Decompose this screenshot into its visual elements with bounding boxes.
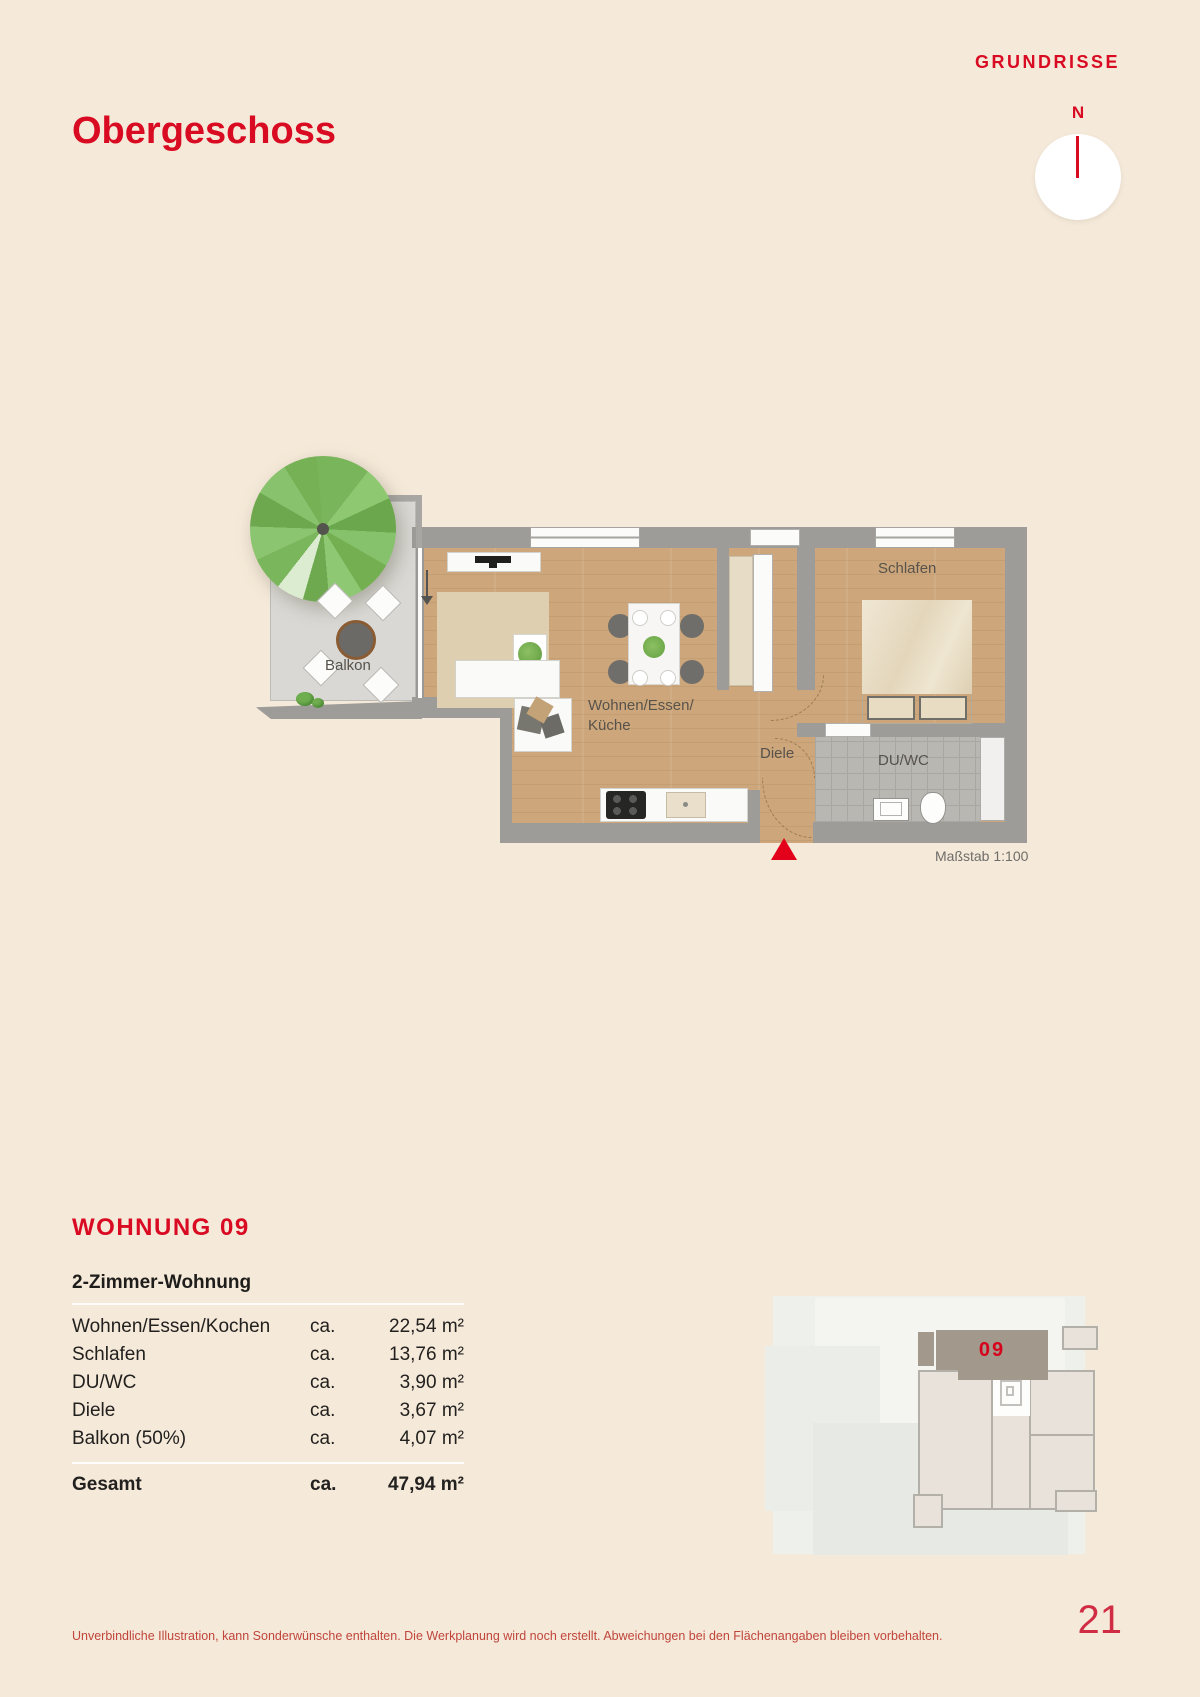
row-prefix: ca. bbox=[310, 1316, 352, 1338]
compass-north-label: N bbox=[1058, 103, 1098, 123]
tv-stand bbox=[489, 563, 497, 568]
wall-living-hall bbox=[717, 548, 729, 690]
total-prefix: ca. bbox=[310, 1474, 352, 1496]
row-label: Balkon (50%) bbox=[72, 1428, 310, 1450]
table-plant bbox=[643, 636, 665, 658]
unit-09-highlight: 09 bbox=[936, 1330, 1048, 1370]
row-label: Schlafen bbox=[72, 1344, 310, 1366]
sofa bbox=[455, 660, 560, 698]
row-value: 3,67 m² bbox=[352, 1400, 464, 1422]
table-total-row: Gesamt ca. 47,94 m² bbox=[72, 1462, 464, 1500]
entrance-marker-icon bbox=[771, 838, 797, 860]
building-divider bbox=[1031, 1434, 1093, 1436]
plate bbox=[632, 670, 648, 686]
stairs-icon bbox=[1006, 1386, 1014, 1396]
page-number: 21 bbox=[1078, 1598, 1123, 1643]
wall-entry-side bbox=[748, 790, 760, 843]
scale-label: Maßstab 1:100 bbox=[935, 848, 1028, 864]
dining-chair bbox=[680, 614, 704, 638]
wall-south-kitchen bbox=[512, 823, 748, 843]
bed-pillow bbox=[919, 696, 967, 720]
plate bbox=[660, 670, 676, 686]
parasol-umbrella bbox=[250, 456, 396, 602]
bed-pillow bbox=[867, 696, 915, 720]
row-value: 13,76 m² bbox=[352, 1344, 464, 1366]
window-bedroom bbox=[875, 527, 955, 548]
total-value: 47,94 m² bbox=[352, 1474, 464, 1496]
wall-east bbox=[1005, 527, 1027, 843]
balcony-table bbox=[336, 620, 376, 660]
entry-arrow-line bbox=[426, 570, 428, 596]
window-living bbox=[530, 527, 640, 548]
dining-chair bbox=[680, 660, 704, 684]
footer-disclaimer: Unverbindliche Illustration, kann Sonder… bbox=[72, 1629, 942, 1643]
apartment-heading: WOHNUNG 09 bbox=[72, 1214, 250, 1242]
door-bath bbox=[825, 723, 871, 737]
row-label: Diele bbox=[72, 1400, 310, 1422]
site-minimap: 09 bbox=[755, 1288, 1100, 1563]
hall-wardrobe bbox=[729, 556, 753, 686]
plate bbox=[660, 610, 676, 626]
row-value: 4,07 m² bbox=[352, 1428, 464, 1450]
section-kicker: GRUNDRISSE bbox=[975, 52, 1120, 73]
shower bbox=[980, 737, 1005, 821]
unit-09-wing bbox=[918, 1332, 934, 1366]
row-prefix: ca. bbox=[310, 1344, 352, 1366]
table-row: DU/WC ca. 3,90 m² bbox=[72, 1372, 464, 1400]
total-label: Gesamt bbox=[72, 1474, 310, 1496]
room-label-wohnen: Wohnen/Essen/ bbox=[588, 697, 694, 714]
room-label-duwc: DU/WC bbox=[878, 752, 929, 769]
room-label-balkon: Balkon bbox=[325, 657, 371, 674]
hall-sliding-door bbox=[753, 554, 773, 692]
building-annex bbox=[1055, 1490, 1097, 1512]
room-label-kueche: Küche bbox=[588, 717, 631, 734]
row-label: DU/WC bbox=[72, 1372, 310, 1394]
compass-needle-icon bbox=[1076, 136, 1079, 178]
toilet bbox=[920, 792, 946, 824]
floorplan: Balkon Wohnen/Essen/ Küche Diele Schlafe… bbox=[230, 420, 1040, 880]
table-row: Balkon (50%) ca. 4,07 m² bbox=[72, 1428, 464, 1456]
sink-drain bbox=[683, 802, 688, 807]
area-table: Wohnen/Essen/Kochen ca. 22,54 m² Schlafe… bbox=[72, 1303, 464, 1500]
wall-balcony-step bbox=[416, 495, 422, 549]
entry-arrow-head bbox=[421, 596, 433, 605]
building-annex bbox=[1062, 1326, 1098, 1350]
room-label-schlafen: Schlafen bbox=[878, 560, 936, 577]
apartment-subtitle: 2-Zimmer-Wohnung bbox=[72, 1272, 251, 1294]
wall-hall-bedroom bbox=[797, 548, 815, 690]
table-row: Schlafen ca. 13,76 m² bbox=[72, 1344, 464, 1372]
window-hall bbox=[750, 529, 800, 546]
table-row: Wohnen/Essen/Kochen ca. 22,54 m² bbox=[72, 1316, 464, 1344]
row-value: 3,90 m² bbox=[352, 1372, 464, 1394]
row-label: Wohnen/Essen/Kochen bbox=[72, 1316, 310, 1338]
balcony-plant bbox=[312, 698, 324, 708]
room-label-diele: Diele bbox=[760, 745, 794, 762]
row-prefix: ca. bbox=[310, 1400, 352, 1422]
plate bbox=[632, 610, 648, 626]
wall-south-bath bbox=[813, 822, 1005, 843]
row-prefix: ca. bbox=[310, 1428, 352, 1450]
row-value: 22,54 m² bbox=[352, 1316, 464, 1338]
wall-balcony-south bbox=[256, 701, 422, 719]
table-row: Diele ca. 3,67 m² bbox=[72, 1400, 464, 1428]
balcony-glass-door bbox=[416, 548, 424, 698]
tv bbox=[475, 556, 511, 563]
unit-09-label: 09 bbox=[979, 1339, 1005, 1362]
stove bbox=[606, 791, 646, 819]
row-prefix: ca. bbox=[310, 1372, 352, 1394]
building-annex bbox=[913, 1494, 943, 1528]
bed-duvet bbox=[862, 600, 972, 694]
bath-sink-basin bbox=[880, 802, 902, 816]
wall-west-kitchen bbox=[500, 697, 512, 843]
page-title: Obergeschoss bbox=[72, 110, 336, 153]
